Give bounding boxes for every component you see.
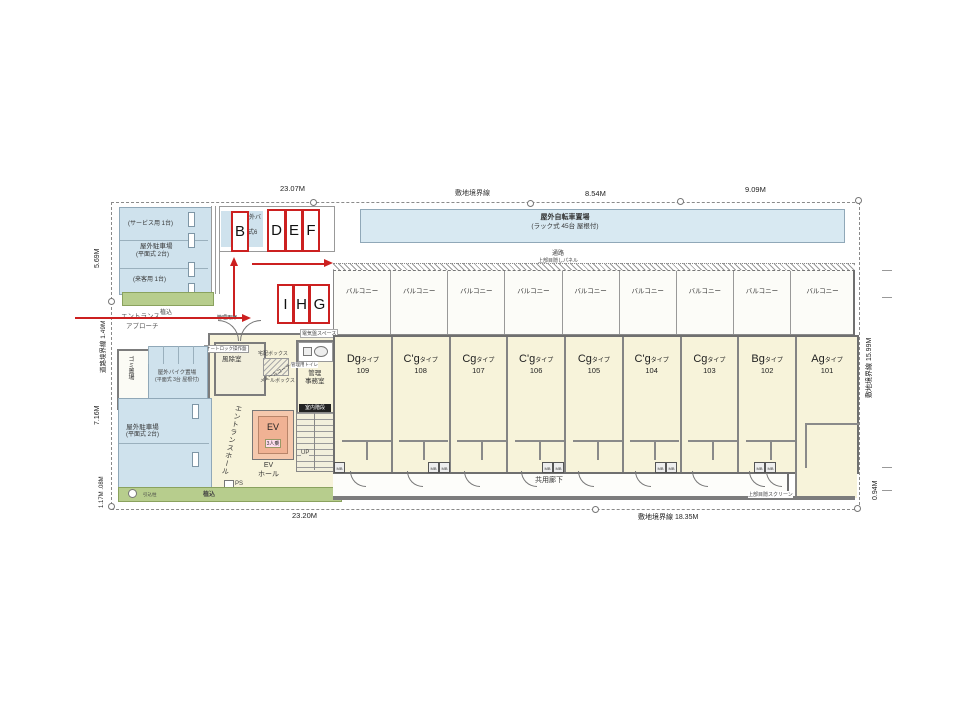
bicycle-parking-label: 屋外自転車置場 (ラック式 45台 屋根付) [430,214,700,231]
balcony-label: バルコニー [460,288,492,295]
balcony-label: バルコニー [403,288,435,295]
toilet-icon [314,346,328,357]
boundary-marker [592,506,599,513]
unit-number: 102 [739,366,795,375]
dim-left-1: 5.69M [94,249,101,268]
planting-strip-top [122,292,214,306]
ev-capacity: 3人乗 [265,439,282,448]
meter-box: MBMB [754,462,776,473]
bike-left-label: 屋外バイク置場 (平面式 3台 屋根付) [149,368,205,383]
entrance-approach-2: アプローチ [126,323,159,331]
unit-cell-105: Cgタイプ 105 [564,337,622,472]
pole-marker [128,489,137,498]
dim-right-1: 0.94M [872,481,879,500]
balcony-cell: バルコニー [447,271,504,334]
balcony-row: バルコニー バルコニー バルコニー バルコニー バルコニー バルコニー バルコニ… [333,270,855,335]
up-label: UP [301,450,309,456]
margin-tick [882,297,892,298]
balcony-cell: バルコニー [334,271,390,334]
boundary-marker [108,503,115,510]
unit-type: Cgタイプ [451,353,507,365]
boundary-label-bottom: 敷地境界線 18.35M [638,512,698,522]
boundary-label-top: 敷地境界線 [455,190,490,199]
boundary-label-right: 敷地境界線 15.99M [864,338,874,398]
boundary-marker [108,298,115,305]
balcony-label: バルコニー [517,288,549,295]
box-letter: E [289,222,299,239]
dim-left-3: 1.17M .08M [99,476,105,508]
boundary-marker [310,199,317,206]
unit-number: 104 [624,366,680,375]
box-letter: H [296,296,307,313]
delivery-box-label: 宅配ボックス [258,350,288,357]
margin-tick [882,270,892,271]
route-line [75,317,243,319]
office-label: 管理事務室 [305,370,325,386]
windbreak-label: 風除室 [222,356,242,364]
balcony-cell: バルコニー [790,271,854,334]
pole-label: 引込柱 [143,492,157,498]
walkway-label: 通路 [552,248,564,257]
car-stop [188,233,195,248]
box-letter: G [314,296,326,313]
boundary-marker [855,197,862,204]
red-box-i: I [277,284,294,324]
parking-top-sub: (平面式 2台) [136,252,169,260]
route-line-2 [252,263,325,265]
unit-type: Bgタイプ [739,353,795,365]
parking-left-label: 屋外駐車場 (平面式 2台) [126,424,159,440]
meter-box: MBMB [655,462,677,473]
dim-top-1: 23.07M [280,184,305,193]
balcony-cell: バルコニー [733,271,790,334]
dim-top-3: 9.09M [745,185,766,194]
car-stop [192,452,199,467]
balcony-cell: バルコニー [504,271,561,334]
red-box-g: G [309,284,330,324]
unit-row: Dgタイプ 109 C'gタイプ 108 Cgタイプ 107 C'gタイプ 10… [333,335,859,474]
bike-grid [148,346,206,364]
bike-rack-frag1: 外バ [249,215,261,223]
ev-label: EV [259,422,287,432]
unit-cell-103: Cgタイプ 103 [680,337,738,472]
unit-cell-104: C'gタイプ 104 [622,337,680,472]
unit-type: Cgタイプ [682,353,738,365]
unit-cell-101: Agタイプ 101 [795,337,857,498]
route-line-up [233,266,235,316]
unit-number: 105 [566,366,622,375]
unit-cell-107: Cgタイプ 107 [449,337,507,472]
dim-left-2: 7.16M [94,406,101,425]
route-arrow-right2-icon [324,259,333,267]
unit-number: 103 [682,366,738,375]
balcony-label: バルコニー [806,288,838,295]
privacy-panel-strip [333,263,855,270]
office-toilet-label: 管理用トイレ [291,362,318,368]
ev-hall-label: EVホール [258,462,279,480]
boundary-marker [677,198,684,205]
balcony-cell: バルコニー [676,271,733,334]
balcony-cell: バルコニー [619,271,676,334]
unit-number: 108 [393,366,449,375]
planting-top-label: 植込 [160,307,172,316]
car-stop [188,262,195,277]
parking-top-visitor: (来客用 1台) [133,277,166,285]
balcony-cell: バルコニー [390,271,447,334]
box-letter: D [271,222,282,239]
unit-type: Dgタイプ [335,353,391,365]
balcony-label: バルコニー [574,288,606,295]
dim-top-2: 8.54M [585,189,606,198]
stairs-header: 室内階段 [299,404,331,412]
red-box-h: H [293,284,310,324]
stall-divider [119,443,209,444]
boundary-marker [527,200,534,207]
stairs [296,412,335,472]
unit-number: 107 [451,366,507,375]
parking-top-title: 屋外駐車場 [140,243,173,251]
planting-bottom-label: 植込 [203,489,215,498]
unit-type: C'gタイプ [508,353,564,365]
unit-type: C'gタイプ [624,353,680,365]
toilet-icon [303,347,312,356]
unit-type: C'gタイプ [393,353,449,365]
ev-car: EV 3人乗 [258,416,288,454]
route-arrow-up-icon [230,257,238,266]
bike-rack-frag2: 式6 [248,230,257,238]
dim-bottom-1: 23.20M [292,511,317,520]
screen-note: 上部目隠スクリーン [748,491,793,498]
mailbox-label: メールボックス [260,377,295,384]
meter-box: MBMB [542,462,564,473]
route-arrow-right-icon [242,314,251,322]
bicycle-line1: 屋外自転車置場 [430,214,700,223]
balcony-label: バルコニー [346,288,378,295]
corridor-label: 共用廊下 [535,477,563,486]
box-letter: F [306,222,315,239]
boundary-label-left: 道路境界線 1.49M [97,321,107,373]
meter-box: MBMB [428,462,450,473]
unit-cell-106: C'gタイプ 106 [506,337,564,472]
bicycle-line2: (ラック式 45台 屋根付) [430,223,700,231]
margin-tick [882,467,892,468]
boundary-marker [854,505,861,512]
unit-cell-109: Dgタイプ 109 [335,337,391,472]
garbage-label: ゴミ置場 [126,356,135,380]
meter-box: MB [334,462,345,473]
unit-cell-102: Bgタイプ 102 [737,337,795,472]
red-box-f: F [302,209,320,252]
box-letter: I [283,296,287,313]
unit-type: Cgタイプ [566,353,622,365]
unit-number: 106 [508,366,564,375]
balcony-label: バルコニー [689,288,721,295]
unit-cell-108: C'gタイプ 108 [391,337,449,472]
car-stop [188,212,195,227]
balcony-cell: バルコニー [562,271,619,334]
stairs-divider [314,412,315,470]
red-box-d: D [267,209,286,252]
red-box-b: B [231,211,249,252]
margin-tick [882,490,892,491]
balcony-label: バルコニー [632,288,664,295]
unit-number: 109 [335,366,391,375]
car-stop [192,404,199,419]
autolock-label: オートロック操作盤 [204,345,249,353]
unit-type: Agタイプ [797,353,857,365]
box-letter: B [235,223,245,240]
site-plan-drawing: 23.07M 敷地境界線 8.54M 9.09M 23.20M 敷地境界線 18… [0,0,960,720]
unit-number: 101 [797,366,857,375]
balcony-label: バルコニー [746,288,778,295]
red-box-e: E [285,209,303,252]
parking-top-service: (サービス用 1台) [128,221,173,229]
